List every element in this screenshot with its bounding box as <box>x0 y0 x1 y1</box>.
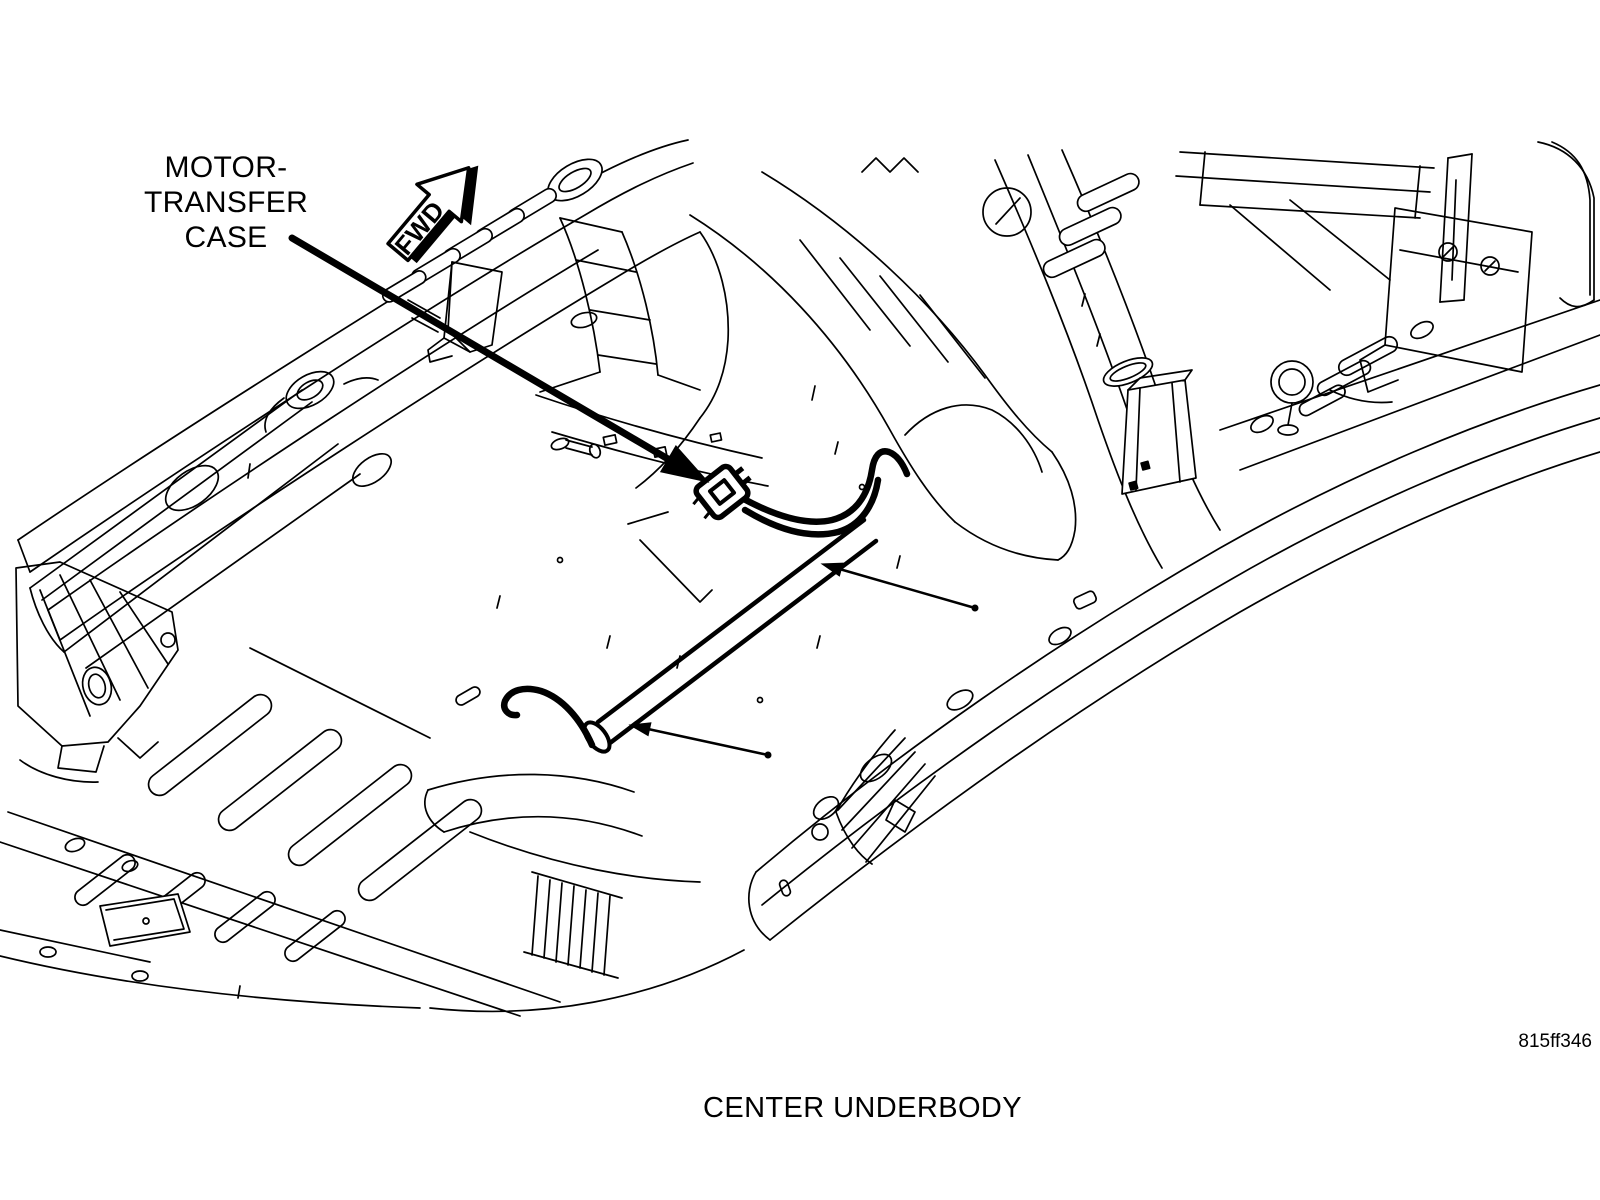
front-crossmember-beam <box>30 364 397 652</box>
support-bracket <box>16 562 178 782</box>
hatched-panel <box>524 872 622 978</box>
callout-label: MOTOR- TRANSFER CASE <box>126 150 326 255</box>
callout-line-2: TRANSFER <box>126 185 326 220</box>
floor-corrugations <box>800 158 985 378</box>
figure-caption: CENTER UNDERBODY <box>690 1092 1035 1125</box>
harness-tube-top <box>598 520 864 722</box>
service-manual-figure: FWD MOTOR- TRANSFER CASE CENTER UNDERBOD… <box>0 0 1600 1200</box>
mid-rail <box>425 685 700 882</box>
underbody-structure <box>0 140 1600 1016</box>
upper-right-structure <box>1176 142 1594 403</box>
floor-detail-marks <box>497 556 900 703</box>
callout-line-3: CASE <box>126 220 326 255</box>
figure-code: 815ff346 <box>1480 1031 1592 1053</box>
fwd-arrow-icon: FWD <box>376 145 500 275</box>
transfer-case-connector <box>687 458 758 525</box>
center-rail <box>983 150 1220 568</box>
callout-line-1: MOTOR- <box>126 150 326 185</box>
seat-crossmember <box>536 218 768 602</box>
harness-coil <box>504 689 592 745</box>
callout-leader-arrow <box>292 238 708 482</box>
